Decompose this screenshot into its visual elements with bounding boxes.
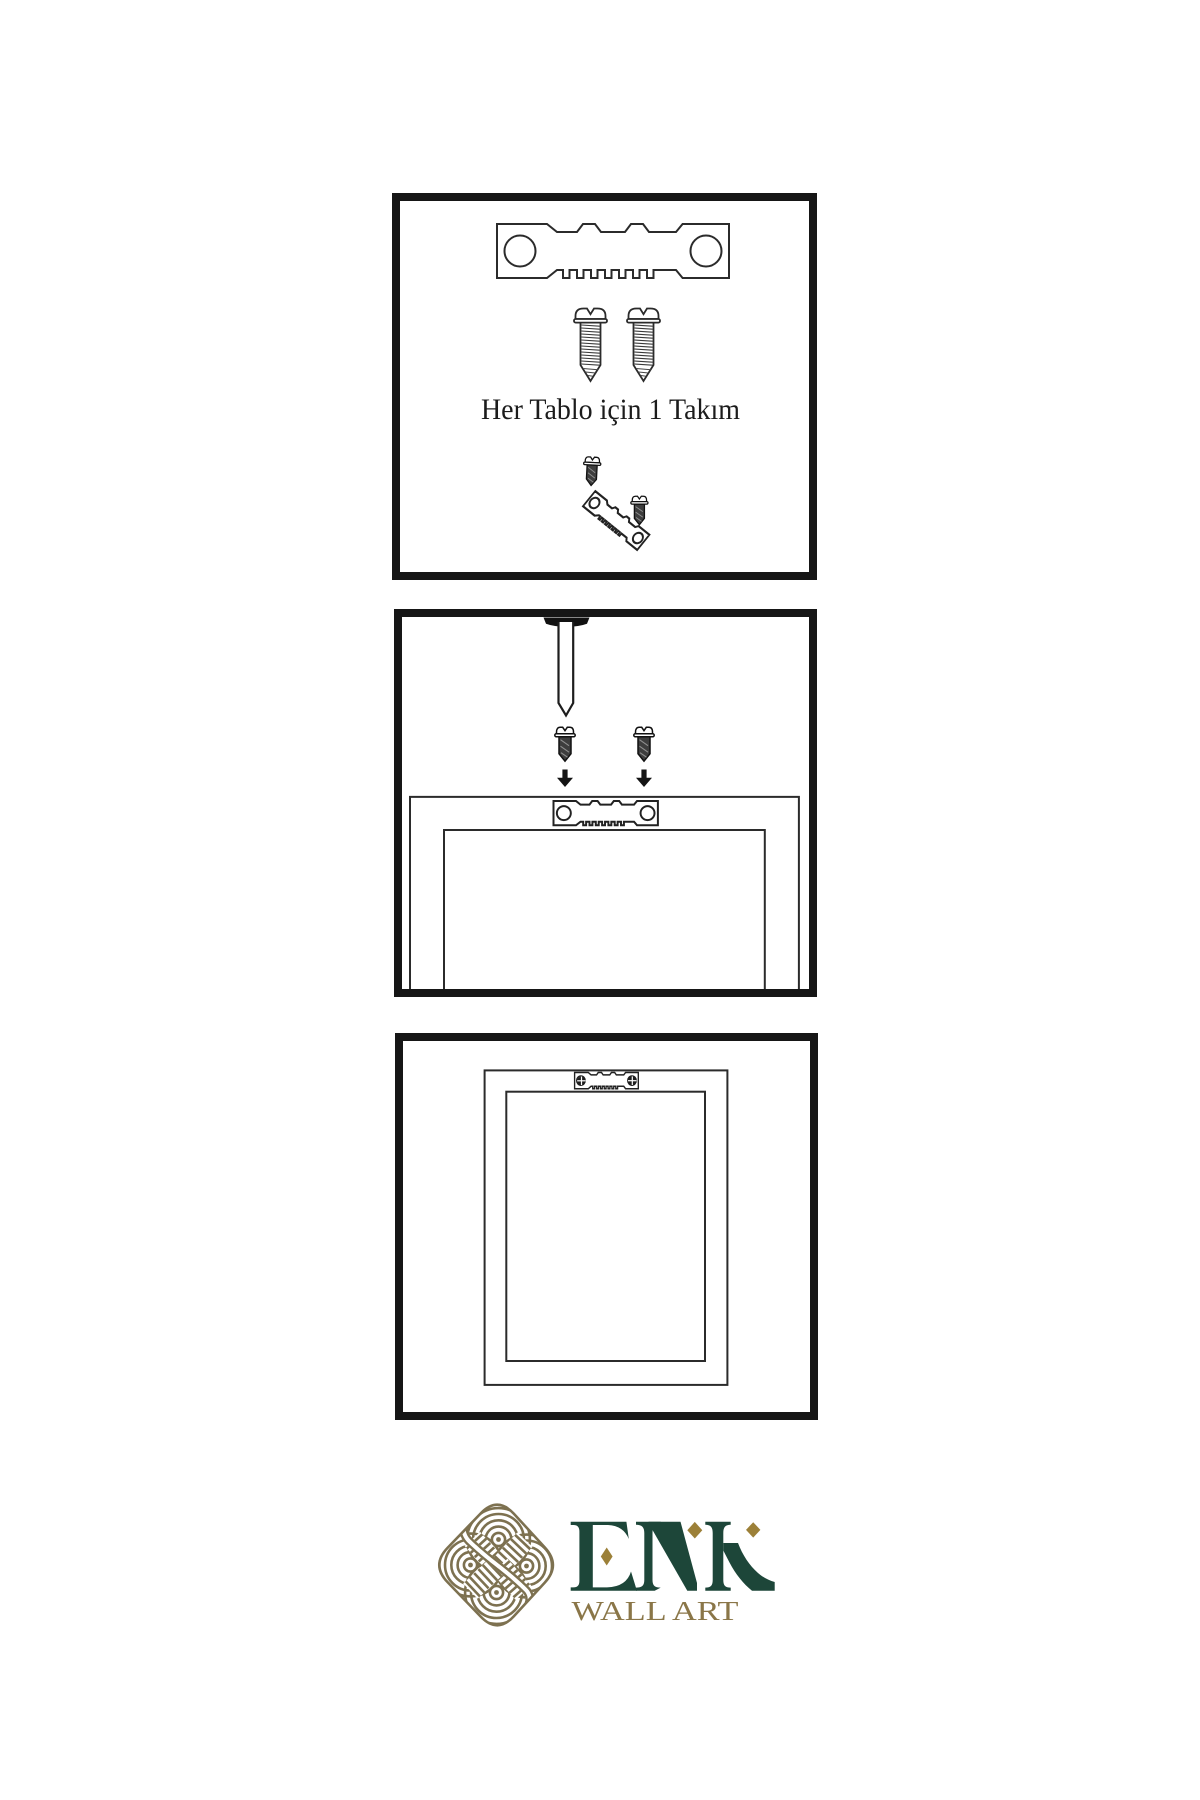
svg-text:WALL ART: WALL ART [572, 1596, 740, 1626]
svg-text:Her Tablo için 1 Takım: Her Tablo için 1 Takım [481, 393, 740, 426]
